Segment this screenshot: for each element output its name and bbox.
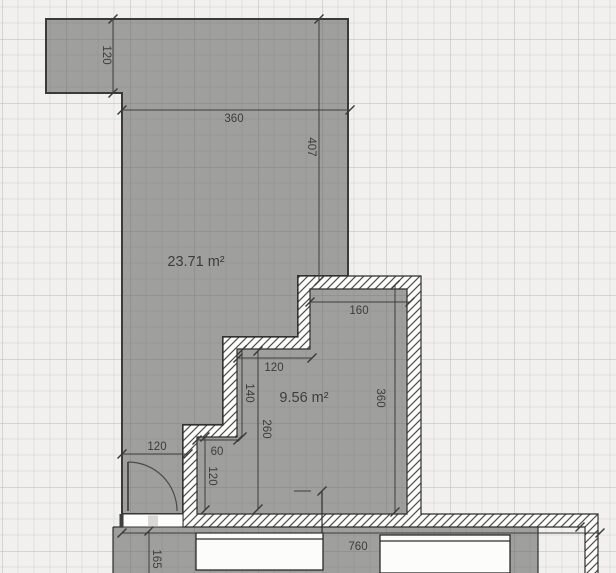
- dimension-label: 120: [206, 466, 218, 485]
- dimension-label: 120: [100, 45, 112, 64]
- dimension-label: 360: [224, 113, 243, 125]
- dimension-label: 140: [243, 383, 255, 402]
- dimension-label: 260: [260, 419, 272, 438]
- door-threshold: [148, 516, 158, 527]
- room-small-area-label: 9.56 m²: [279, 390, 328, 406]
- dimension-label: 760: [348, 541, 367, 553]
- dimension-label: 120: [147, 441, 166, 453]
- room-large-area-label: 23.71 m²: [167, 254, 224, 270]
- wall-stub: [120, 514, 124, 527]
- floor-plan-canvas[interactable]: 120 360 407 160 120 140 26: [0, 0, 616, 573]
- furniture-counter-right[interactable]: [380, 535, 510, 573]
- floor-plan-svg: 120 360 407 160 120 140 26: [0, 0, 616, 573]
- dimension-label: 120: [264, 362, 283, 374]
- dimension-label: 160: [349, 305, 368, 317]
- dimension-label: 60: [211, 446, 224, 458]
- dimension-label: 407: [305, 137, 317, 156]
- dimension-label: 360: [374, 388, 386, 407]
- furniture-counter-left[interactable]: [196, 533, 323, 570]
- dimension-label: 165: [150, 549, 162, 568]
